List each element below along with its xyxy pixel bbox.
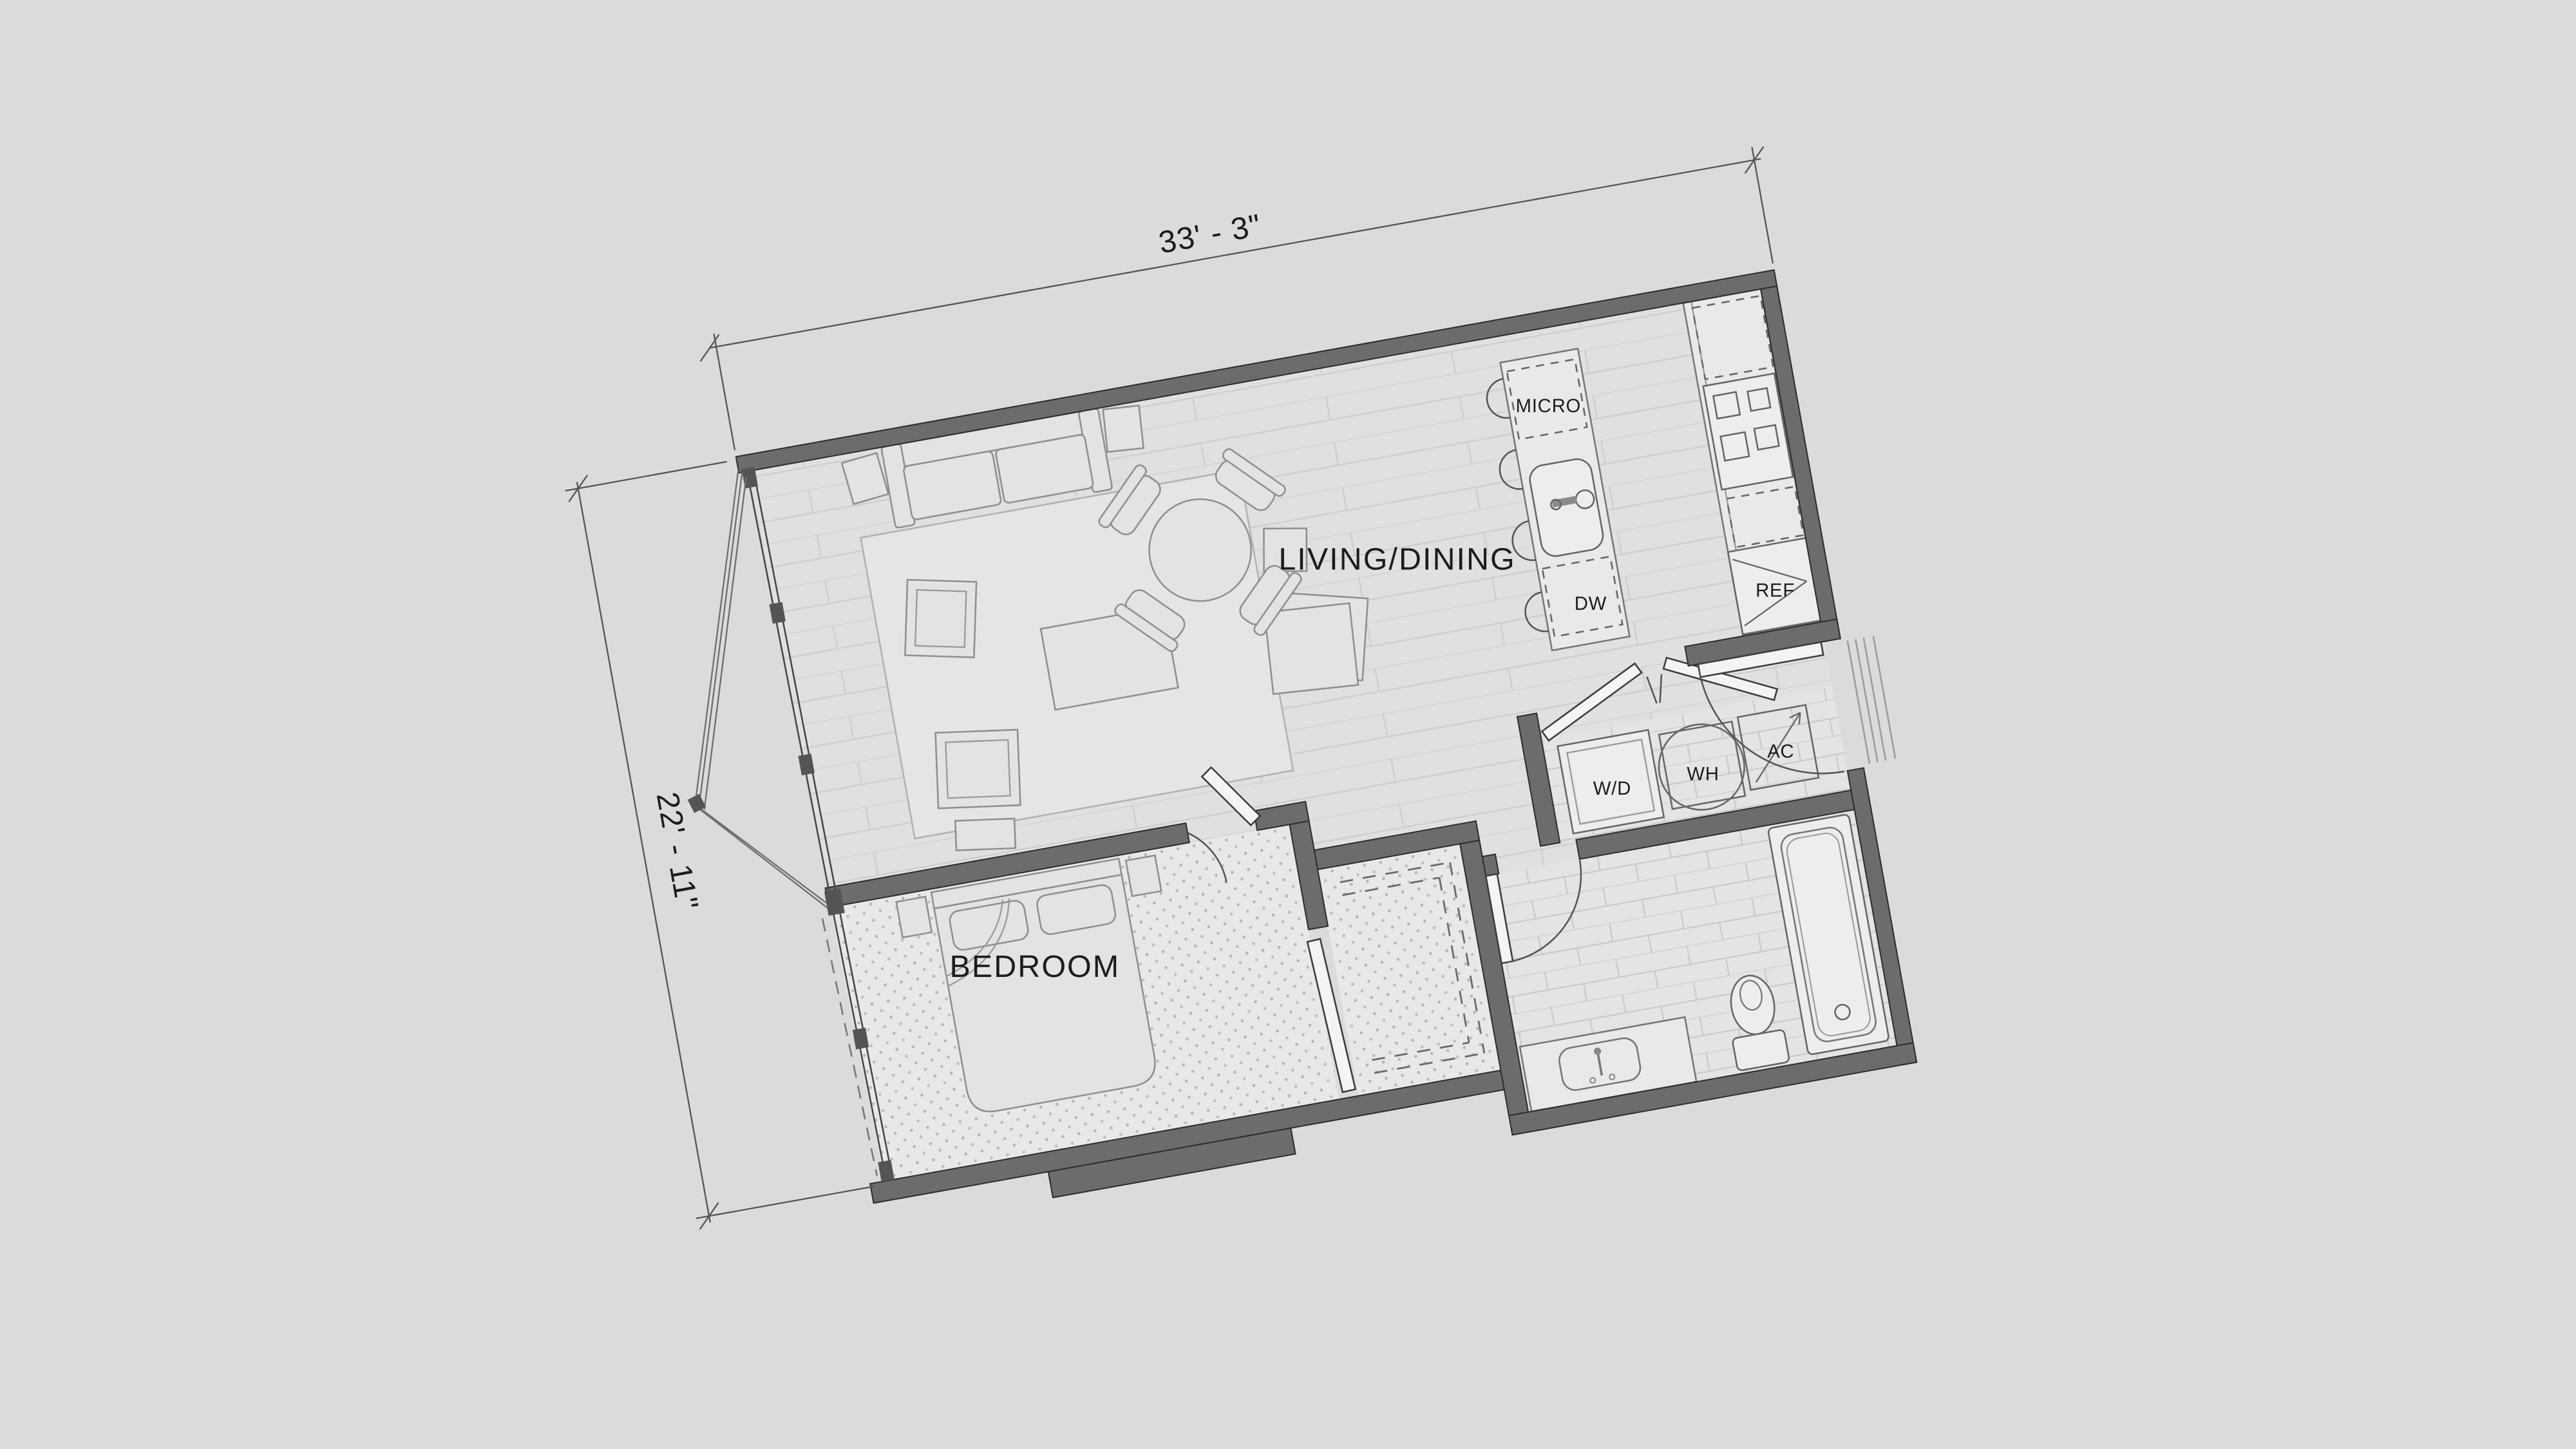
floor-plan-canvas: REF MICRO DW W/D <box>0 0 2576 1449</box>
wall-bath-top-left-jamb <box>1482 854 1499 876</box>
entry-threshold-stripes <box>1848 636 1896 764</box>
dimension-width-text: 33' - 3" <box>1156 208 1264 261</box>
label-wh: WH <box>1687 763 1719 784</box>
label-wd: W/D <box>1593 778 1631 799</box>
bed <box>931 858 1159 1115</box>
washer-dryer: W/D <box>1558 730 1664 833</box>
label-ac: AC <box>1767 741 1794 762</box>
nightstand-left <box>896 896 932 937</box>
label-ref: REF <box>1756 580 1795 601</box>
floor-plan-rotated-group: REF MICRO DW W/D <box>538 114 1949 1280</box>
label-dw: DW <box>1575 593 1607 614</box>
accent-chair-upper-left <box>905 580 976 658</box>
room-label-bedroom: BEDROOM <box>950 949 1121 984</box>
side-table-right <box>1103 406 1144 452</box>
floor-plan-page: REF MICRO DW W/D <box>0 0 2576 1449</box>
label-micro: MICRO <box>1516 395 1582 417</box>
room-label-living-dining: LIVING/DINING <box>1278 542 1515 576</box>
nightstand-right <box>1126 855 1161 896</box>
